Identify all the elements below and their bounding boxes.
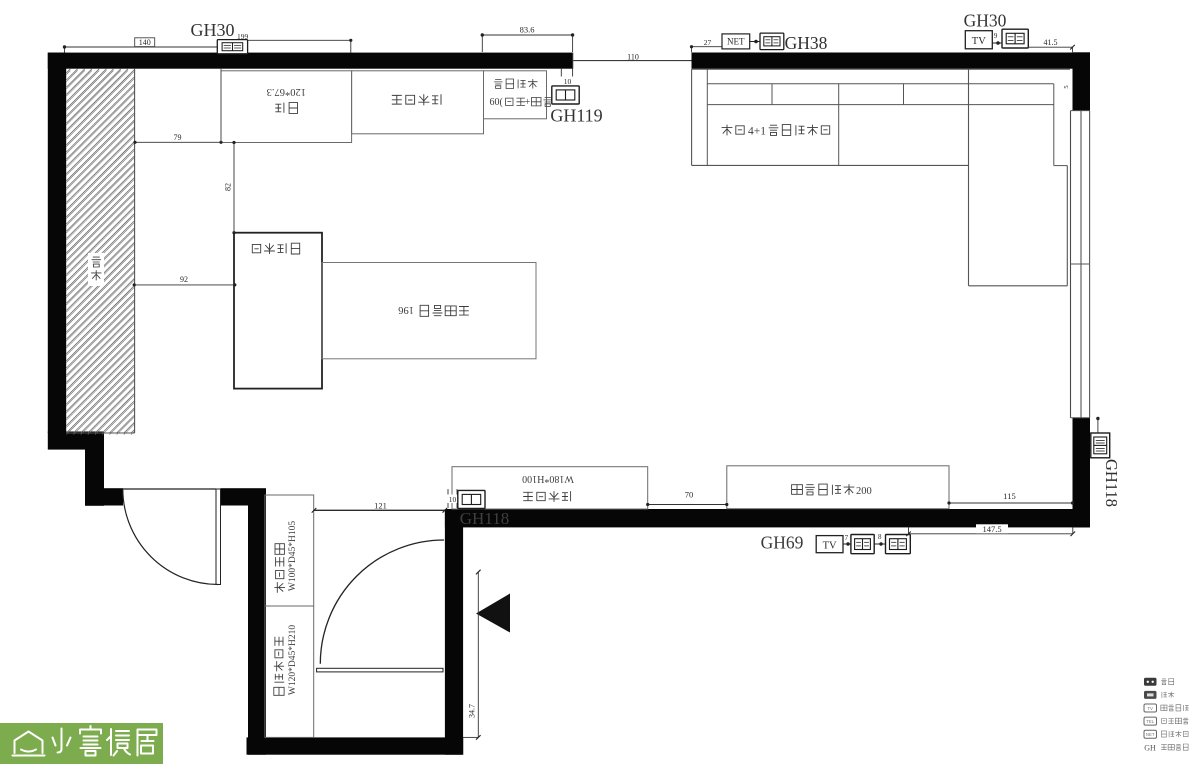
svg-text:NET: NET <box>1146 732 1155 737</box>
svg-text:147.5: 147.5 <box>982 524 1001 534</box>
svg-text:34.7: 34.7 <box>468 704 477 718</box>
svg-text:10: 10 <box>449 495 457 504</box>
svg-text:GH: GH <box>1144 743 1156 752</box>
svg-text:115: 115 <box>1003 491 1015 501</box>
svg-text:5: 5 <box>1063 85 1070 88</box>
svg-text:7: 7 <box>845 534 849 542</box>
svg-text:TEL: TEL <box>1146 719 1154 724</box>
svg-text:NET: NET <box>727 37 745 47</box>
svg-text:GH38: GH38 <box>785 33 828 53</box>
svg-text:41.5: 41.5 <box>1044 38 1058 47</box>
svg-text:8: 8 <box>878 533 882 541</box>
svg-text:79: 79 <box>174 133 182 142</box>
svg-text:27: 27 <box>704 38 712 47</box>
svg-text:110: 110 <box>627 53 639 62</box>
svg-text:9: 9 <box>994 32 998 40</box>
svg-text:121: 121 <box>374 501 387 511</box>
svg-text:W100*D45*H105: W100*D45*H105 <box>288 521 298 591</box>
svg-text:GH118: GH118 <box>460 509 509 528</box>
svg-text:140: 140 <box>139 38 151 47</box>
svg-text:83.6: 83.6 <box>520 25 535 35</box>
svg-text:120*67.3: 120*67.3 <box>267 86 306 97</box>
svg-text:60(: 60( <box>490 97 504 108</box>
svg-text:GH69: GH69 <box>761 533 804 553</box>
svg-text:W180*H100: W180*H100 <box>522 473 574 484</box>
svg-text:GH30: GH30 <box>964 11 1007 31</box>
svg-text:GH119: GH119 <box>550 106 602 126</box>
svg-text:GH30: GH30 <box>191 20 235 40</box>
svg-text:4+1: 4+1 <box>748 126 766 138</box>
svg-text:82: 82 <box>224 183 233 191</box>
svg-text:W120*D45*H210: W120*D45*H210 <box>288 625 298 695</box>
svg-text:10: 10 <box>564 77 572 86</box>
svg-text:TV: TV <box>1147 706 1153 711</box>
svg-text:70: 70 <box>685 490 694 500</box>
svg-text:TV: TV <box>823 540 837 551</box>
svg-text:TV: TV <box>972 36 986 47</box>
svg-text:196: 196 <box>398 304 414 315</box>
svg-text:92: 92 <box>180 275 188 284</box>
svg-text:+: + <box>525 97 531 108</box>
svg-text:200: 200 <box>856 486 872 497</box>
svg-text:GH118: GH118 <box>1102 459 1121 507</box>
